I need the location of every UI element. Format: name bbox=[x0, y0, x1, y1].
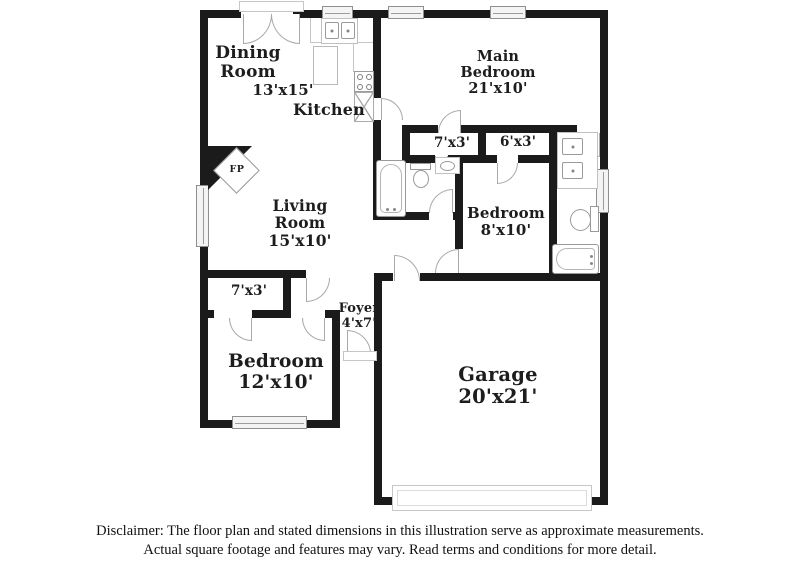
french-door-right-leaf-icon bbox=[271, 14, 300, 44]
bathtub-icon bbox=[376, 160, 406, 217]
room-label-garage: Garage 20'x21' bbox=[458, 364, 537, 408]
disclaimer-line: Disclaimer: The floor plan and stated di… bbox=[20, 522, 780, 541]
sink-bowl-icon bbox=[440, 161, 455, 171]
french-door-frame bbox=[239, 1, 304, 12]
kitchen-island bbox=[313, 46, 338, 85]
closet-label-hall: 7'x3' bbox=[434, 136, 470, 151]
sink-basin-icon bbox=[562, 162, 583, 179]
faucet-icon bbox=[386, 208, 389, 211]
room-label-living-room: Living Room 15'x10' bbox=[268, 197, 331, 249]
door-arc-garage bbox=[394, 255, 420, 281]
vanity-counter bbox=[557, 132, 598, 189]
window bbox=[388, 6, 424, 19]
room-dims-dining: 13'x15' bbox=[252, 82, 313, 99]
burner-icon bbox=[357, 74, 363, 80]
room-label-kitchen: Kitchen bbox=[293, 101, 365, 119]
kitchen-counter bbox=[353, 43, 373, 72]
door-arc-bedroom-12x10-right bbox=[302, 318, 325, 341]
french-door-left-leaf-icon bbox=[243, 14, 272, 44]
room-dims: 15'x10' bbox=[268, 232, 331, 249]
closet-label-7x3: 7'x3' bbox=[231, 284, 267, 299]
wall bbox=[252, 310, 291, 318]
room-label-main-bedroom: Main Bedroom 21'x10' bbox=[460, 49, 535, 98]
room-label-line: Bedroom bbox=[467, 205, 545, 222]
front-door-threshold bbox=[343, 351, 377, 361]
bathtub-icon bbox=[552, 244, 599, 274]
fireplace-label: FP bbox=[230, 165, 245, 176]
door-arc-kitchen-hall bbox=[381, 98, 403, 120]
room-label-line: Foyer bbox=[339, 302, 380, 317]
garage-door-panel bbox=[397, 490, 587, 506]
window bbox=[196, 185, 209, 247]
garage-door bbox=[392, 485, 592, 511]
room-dims: 21'x10' bbox=[460, 81, 535, 97]
room-label-line: Room bbox=[215, 63, 280, 82]
window bbox=[490, 6, 526, 19]
room-label-line: Living bbox=[268, 197, 331, 214]
wall bbox=[200, 310, 214, 318]
room-label-foyer: Foyer 4'x7' bbox=[339, 302, 380, 331]
toilet-tank-icon bbox=[410, 163, 431, 170]
room-dims: 20'x21' bbox=[458, 386, 537, 408]
wall bbox=[420, 273, 608, 281]
sink-basin-icon bbox=[341, 22, 355, 39]
wall bbox=[600, 10, 608, 505]
door-arc-bedroom-8x10 bbox=[435, 249, 459, 273]
room-dims: 12'x10' bbox=[228, 373, 324, 394]
sink-basin-icon bbox=[562, 138, 583, 155]
door-arc-main-bedroom bbox=[438, 110, 461, 133]
burner-icon bbox=[366, 74, 372, 80]
wall bbox=[200, 270, 306, 278]
wall bbox=[402, 125, 438, 133]
room-label-line: Dining bbox=[215, 44, 280, 63]
wall bbox=[402, 155, 435, 163]
toilet-bowl-icon bbox=[570, 209, 591, 231]
stove-icon bbox=[354, 71, 374, 92]
room-label-bedroom-12x10: Bedroom 12'x10' bbox=[228, 352, 324, 393]
kitchen-sink-icon bbox=[321, 18, 358, 44]
room-label-line: Garage bbox=[458, 364, 537, 386]
disclaimer-line: Actual square footage and features may v… bbox=[20, 541, 780, 560]
room-label-line: Room bbox=[268, 214, 331, 231]
room-label-line: Main bbox=[460, 49, 535, 65]
faucet-icon bbox=[590, 255, 593, 258]
room-dims: 4'x7' bbox=[339, 317, 380, 332]
wall bbox=[518, 155, 557, 163]
door-arc-bedroom-12x10-left bbox=[229, 318, 252, 341]
sink-basin-icon bbox=[325, 22, 339, 39]
bathtub-liner bbox=[556, 248, 595, 270]
room-label-bedroom-8x10: Bedroom 8'x10' bbox=[467, 205, 545, 239]
bathtub-liner bbox=[380, 164, 402, 213]
door-arc-living-hall bbox=[306, 278, 330, 302]
wall bbox=[382, 273, 393, 281]
burner-icon bbox=[366, 84, 372, 90]
door-arc-hall-bath bbox=[429, 189, 453, 213]
bathroom-sink-icon bbox=[435, 157, 460, 174]
room-dims: 8'x10' bbox=[467, 222, 545, 239]
burner-icon bbox=[357, 84, 363, 90]
toilet-tank-icon bbox=[590, 206, 599, 232]
door-arc-closet-6x3 bbox=[497, 163, 518, 184]
floor-plan: Dining Room 13'x15' Kitchen Main Bedroom… bbox=[0, 0, 800, 582]
room-label-dining: Dining Room bbox=[215, 44, 280, 82]
room-label-line: Bedroom bbox=[228, 352, 324, 373]
closet-label-6x3: 6'x3' bbox=[500, 135, 536, 150]
wall bbox=[455, 163, 463, 249]
window bbox=[232, 416, 307, 429]
wall bbox=[373, 18, 381, 98]
toilet-bowl-icon bbox=[413, 170, 429, 188]
room-label-line: Bedroom bbox=[460, 65, 535, 81]
disclaimer-text: Disclaimer: The floor plan and stated di… bbox=[20, 522, 780, 559]
